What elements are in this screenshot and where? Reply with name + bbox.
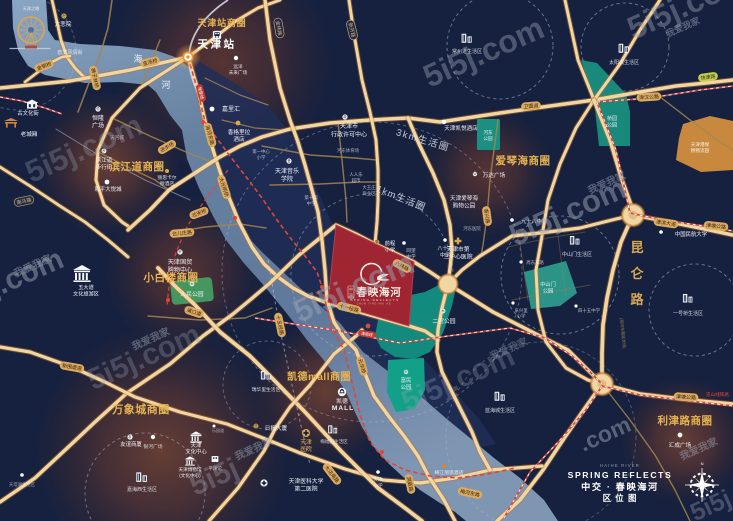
svg-text:天津国贸: 天津国贸 xyxy=(168,258,193,266)
svg-text:中山门生活区: 中山门生活区 xyxy=(562,251,592,258)
svg-text:天津市第: 天津市第 xyxy=(446,245,469,253)
svg-text:人人乐: 人人乐 xyxy=(349,171,363,177)
svg-text:滨江道商圈: 滨江道商圈 xyxy=(110,160,165,173)
svg-text:爱琴海商圈: 爱琴海商圈 xyxy=(496,154,551,167)
svg-text:昆: 昆 xyxy=(630,240,643,255)
svg-text:HAIHE RIVER: HAIHE RIVER xyxy=(600,463,640,468)
svg-text:凯德: 凯德 xyxy=(336,397,348,405)
svg-text:区 位 图: 区 位 图 xyxy=(603,493,638,503)
svg-text:远洋: 远洋 xyxy=(233,63,243,70)
svg-text:桥园: 桥园 xyxy=(607,115,617,122)
svg-text:医院: 医院 xyxy=(300,445,312,453)
svg-text:路: 路 xyxy=(630,292,644,307)
svg-text:万象城商圈: 万象城商圈 xyxy=(111,402,170,416)
svg-text:天津: 天津 xyxy=(191,442,202,449)
svg-text:嘉海西生活区: 嘉海西生活区 xyxy=(127,486,157,493)
svg-text:瑞华里生活区: 瑞华里生活区 xyxy=(252,386,281,393)
svg-text:酒店: 酒店 xyxy=(233,135,245,143)
svg-text:小学: 小学 xyxy=(257,154,266,161)
svg-text:行政许可中心: 行政许可中心 xyxy=(331,131,367,139)
svg-text:欧式风情街: 欧式风情街 xyxy=(57,49,82,56)
svg-text:友谊商厦: 友谊商厦 xyxy=(120,440,142,448)
svg-text:河东医院: 河东医院 xyxy=(463,225,481,232)
svg-text:文化旅游区: 文化旅游区 xyxy=(73,289,99,297)
svg-text:蓝海城生活区: 蓝海城生活区 xyxy=(485,407,515,414)
svg-text:京山线铁路: 京山线铁路 xyxy=(706,391,729,398)
svg-text:N: N xyxy=(701,461,704,466)
svg-text:小学: 小学 xyxy=(373,482,383,489)
svg-text:前程: 前程 xyxy=(385,239,395,247)
svg-text:天津: 天津 xyxy=(373,476,383,483)
svg-text:河东: 河东 xyxy=(483,129,493,135)
svg-text:河东体育场: 河东体育场 xyxy=(337,147,360,154)
svg-text:小学: 小学 xyxy=(517,313,526,320)
svg-text:梅江丽思酒店: 梅江丽思酒店 xyxy=(435,469,464,476)
svg-text:天津音乐: 天津音乐 xyxy=(275,167,299,175)
svg-text:购物公园: 购物公园 xyxy=(453,201,476,209)
svg-text:SPRING REFLECTS: SPRING REFLECTS xyxy=(568,470,673,480)
svg-text:大悲院: 大悲院 xyxy=(55,20,72,28)
svg-text:乐园道: 乐园道 xyxy=(212,427,224,433)
svg-text:天津凯悦酒店: 天津凯悦酒店 xyxy=(444,124,478,132)
svg-text:文化中心: 文化中心 xyxy=(185,448,207,456)
svg-text:卫国道: 卫国道 xyxy=(523,102,539,110)
svg-text:四十五中学: 四十五中学 xyxy=(578,307,601,314)
svg-text:学院: 学院 xyxy=(281,175,293,183)
svg-text:太阳城生活区: 太阳城生活区 xyxy=(609,59,639,66)
svg-text:天塔湖生活区: 天塔湖生活区 xyxy=(9,481,36,488)
svg-text:日报大厦: 日报大厦 xyxy=(265,424,288,432)
svg-text:中国民航大学: 中国民航大学 xyxy=(675,230,708,238)
svg-text:二宫公园: 二宫公园 xyxy=(432,317,455,325)
svg-text:天津爱琴海: 天津爱琴海 xyxy=(450,194,478,202)
svg-text:河: 河 xyxy=(161,79,170,90)
svg-text:税物流园: 税物流园 xyxy=(691,147,710,154)
svg-text:人民公园: 人民公园 xyxy=(180,291,203,298)
svg-text:津塘公路: 津塘公路 xyxy=(676,393,696,401)
svg-text:三中心医院: 三中心医院 xyxy=(444,253,473,261)
svg-text:丽思卡尔: 丽思卡尔 xyxy=(157,174,176,181)
svg-text:津汉公路: 津汉公路 xyxy=(639,93,659,101)
svg-text:老城厢: 老城厢 xyxy=(21,130,38,138)
svg-text:天津港保: 天津港保 xyxy=(691,141,710,148)
svg-text:MALL: MALL xyxy=(332,405,354,412)
svg-text:顿酒店: 顿酒店 xyxy=(160,180,175,187)
svg-text:公园: 公园 xyxy=(607,123,617,129)
svg-text:未来广场: 未来广场 xyxy=(229,69,248,76)
svg-text:万达广场: 万达广场 xyxy=(483,171,506,179)
svg-text:一号桥生活区: 一号桥生活区 xyxy=(673,310,703,317)
svg-text:日: 日 xyxy=(254,424,257,428)
svg-text:中学: 中学 xyxy=(307,200,316,207)
svg-text:嘉里汇: 嘉里汇 xyxy=(222,105,240,113)
svg-text:第二医院: 第二医院 xyxy=(294,485,317,493)
svg-text:和平大悦城: 和平大悦城 xyxy=(95,185,123,193)
svg-text:香格里拉: 香格里拉 xyxy=(228,128,251,136)
svg-text:天津: 天津 xyxy=(300,439,312,446)
svg-text:商业区: 商业区 xyxy=(362,190,376,197)
svg-text:仑: 仑 xyxy=(630,266,644,281)
svg-text:超市: 超市 xyxy=(352,177,361,184)
svg-text:利津路商圈: 利津路商圈 xyxy=(658,414,713,427)
svg-text:天津站: 天津站 xyxy=(198,38,237,51)
svg-text:天津医科大学: 天津医科大学 xyxy=(289,477,324,485)
svg-text:梅福园生活区: 梅福园生活区 xyxy=(320,438,348,445)
svg-text:凯德mall商圈: 凯德mall商圈 xyxy=(287,370,351,383)
svg-text:天津站商圈: 天津站商圈 xyxy=(197,17,246,28)
svg-text:第一中心: 第一中心 xyxy=(252,148,270,155)
svg-text:周东二路: 周东二路 xyxy=(526,259,544,266)
svg-text:中交 · 春映海河: 中交 · 春映海河 xyxy=(581,481,659,492)
svg-text:公园: 公园 xyxy=(543,288,553,295)
svg-text:五大道: 五大道 xyxy=(78,283,94,291)
svg-text:银河广场: 银河广场 xyxy=(143,443,162,450)
svg-text:天津之眼: 天津之眼 xyxy=(23,5,41,12)
svg-text:大王庄: 大王庄 xyxy=(362,184,376,191)
svg-text:中山门: 中山门 xyxy=(540,280,556,288)
svg-text:第十四: 第十四 xyxy=(304,194,317,201)
svg-text:古文化街: 古文化街 xyxy=(17,109,39,117)
svg-text:天津市: 天津市 xyxy=(340,122,358,130)
